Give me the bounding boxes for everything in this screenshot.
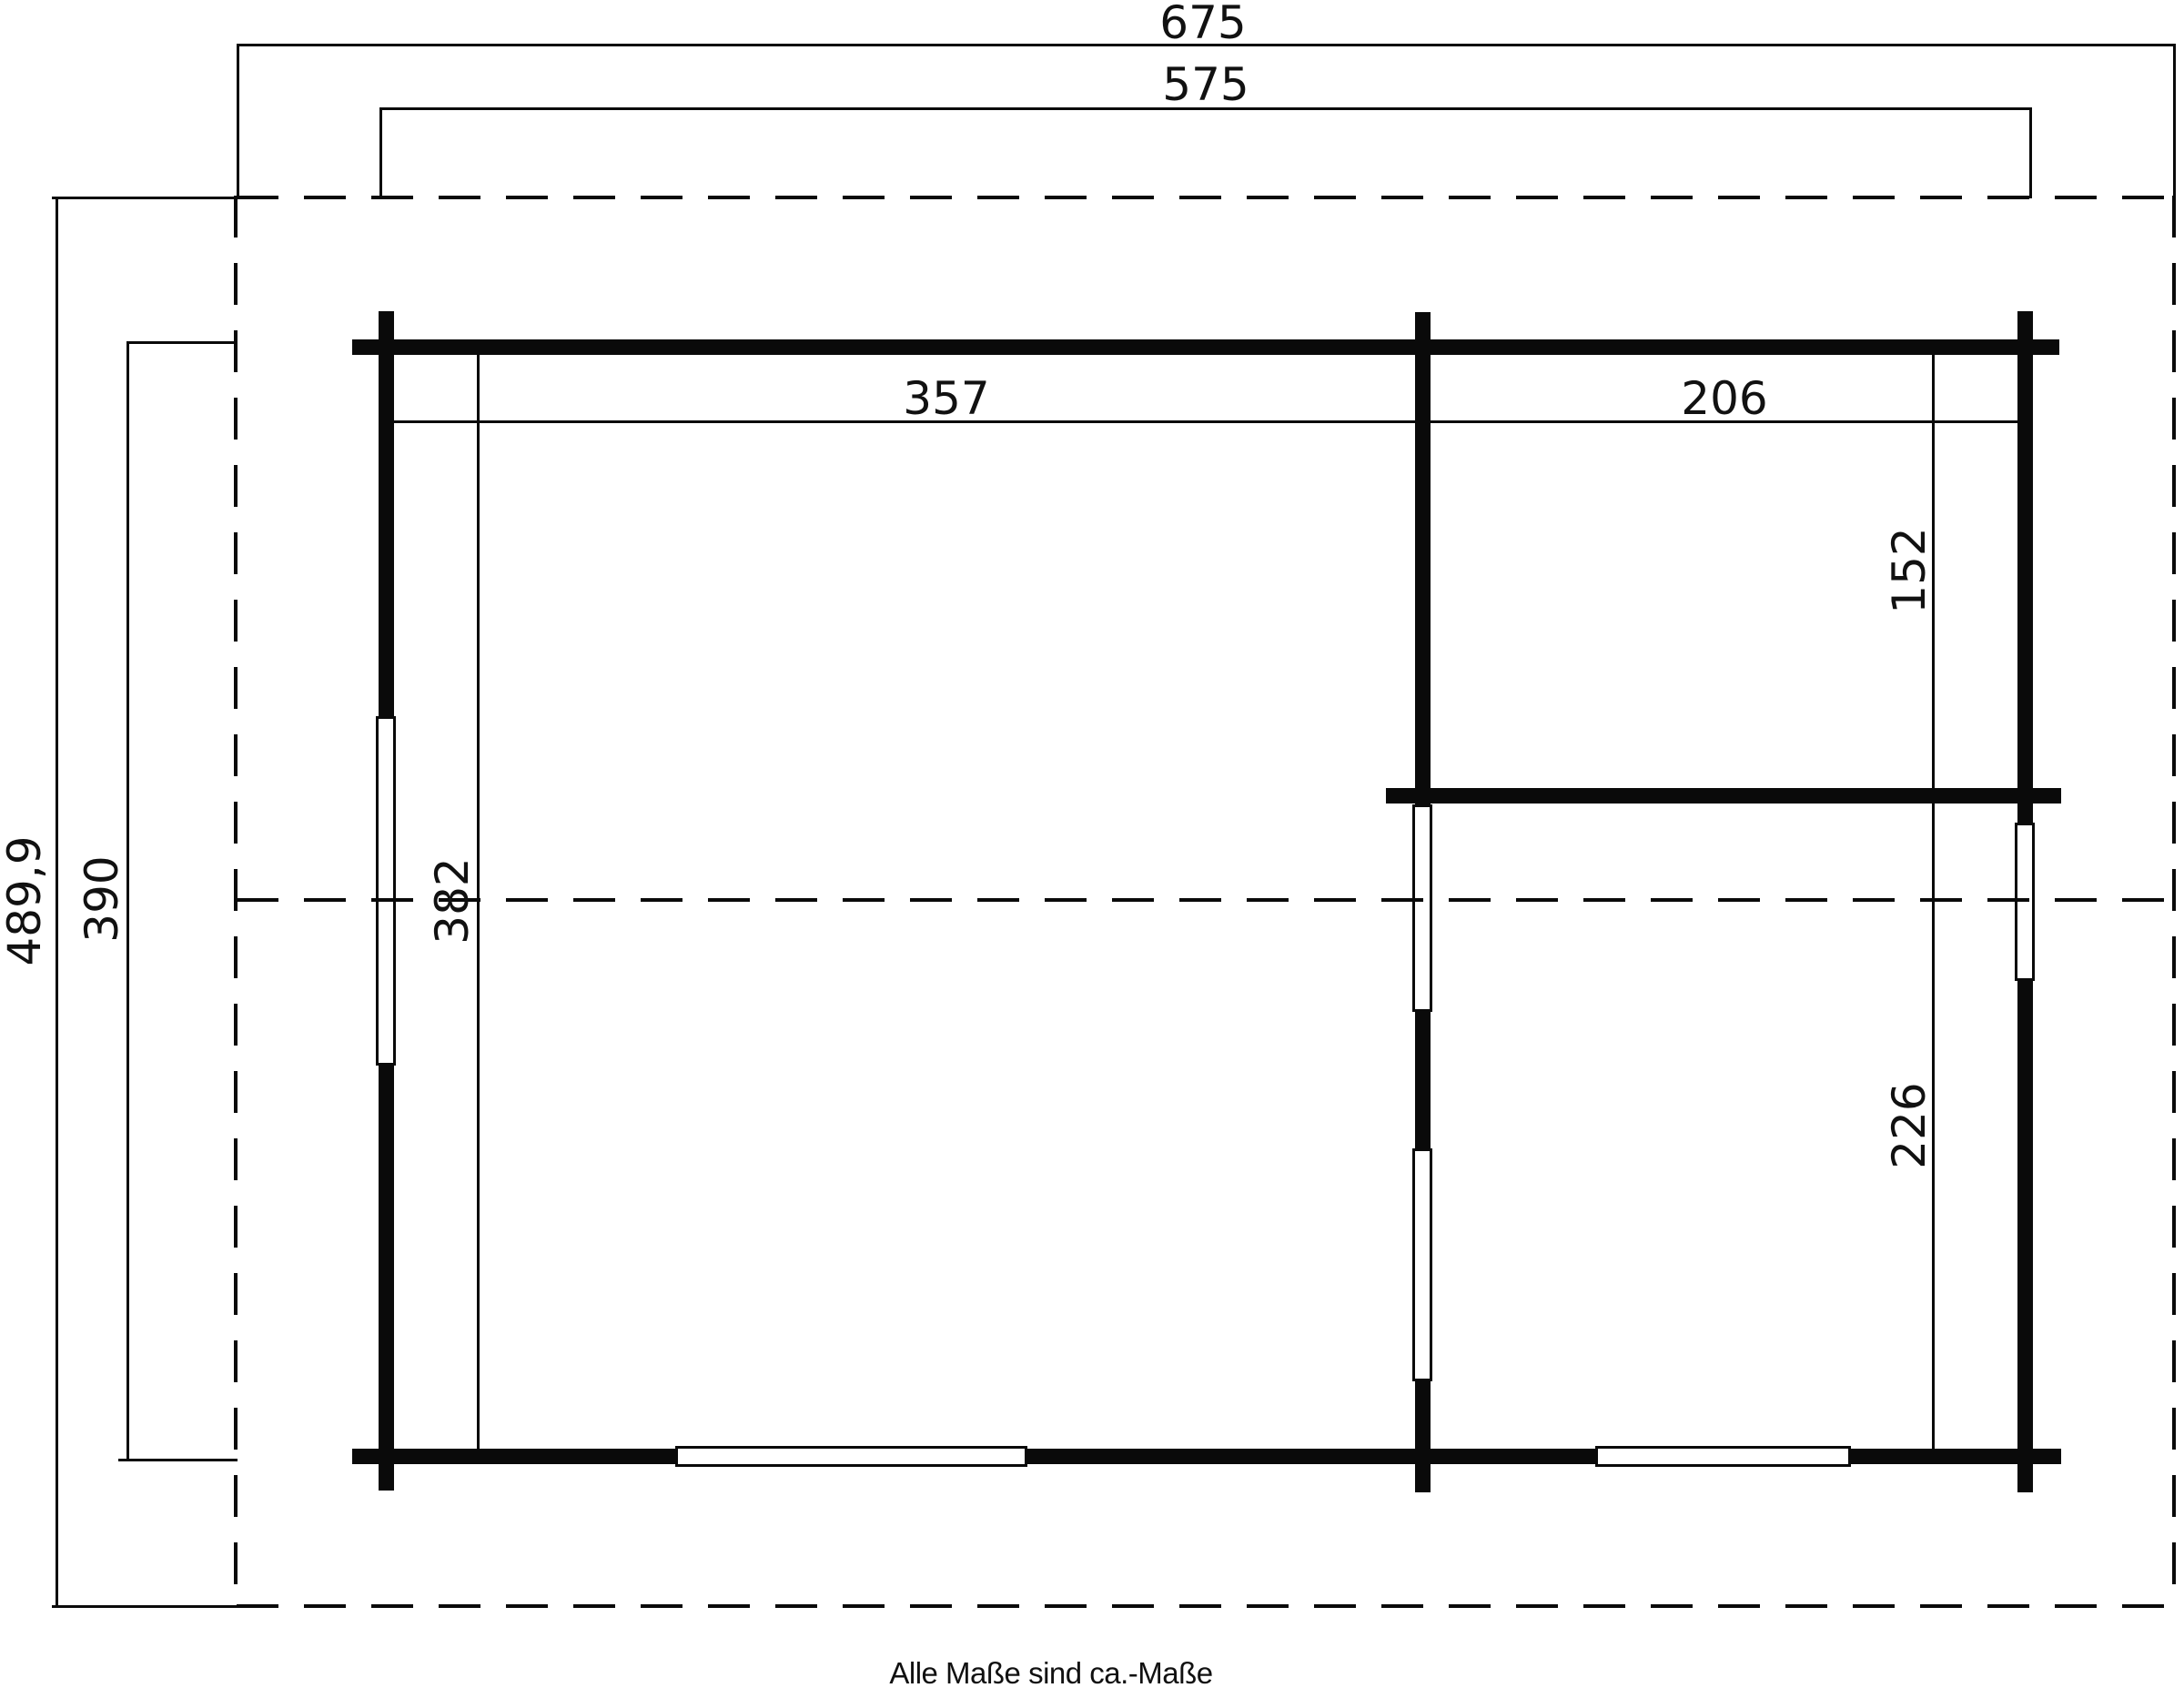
wall-middle-lower bbox=[1415, 1380, 1431, 1492]
roof-outline-right bbox=[2172, 196, 2176, 1608]
roof-outline-top bbox=[237, 196, 2177, 199]
wall-partition-right-room bbox=[1386, 788, 2061, 804]
dimension-line-675-right-tick bbox=[2173, 44, 2176, 198]
dimension-line-390-top-tick bbox=[126, 341, 238, 344]
wall-left-upper bbox=[379, 311, 394, 717]
door-opening-middle-lower bbox=[1412, 1148, 1432, 1381]
dim-overall-width-label: 675 bbox=[1159, 0, 1246, 49]
dim-right-bottom-room-depth-label: 226 bbox=[1883, 1082, 1936, 1168]
wall-middle-upper bbox=[1415, 312, 1431, 806]
dimension-line-575-right-tick bbox=[2029, 107, 2032, 198]
dim-left-room-width-label: 357 bbox=[903, 372, 989, 425]
window-bottom-left bbox=[675, 1446, 1027, 1467]
dimension-line-152-226 bbox=[1932, 355, 1935, 1449]
roof-outline-left bbox=[234, 196, 238, 1608]
caption-approx-dimensions: Alle Maße sind ca.-Maße bbox=[889, 1656, 1212, 1691]
floor-plan-canvas: 675 575 357 206 489,9 390 382 152 226 Al… bbox=[0, 0, 2184, 1698]
window-bottom-right bbox=[1595, 1446, 1851, 1467]
window-right-wall bbox=[2015, 823, 2035, 981]
dimension-line-390-bottom-tick bbox=[118, 1459, 238, 1461]
dimension-line-489-bottom-tick bbox=[52, 1605, 265, 1608]
wall-left-lower bbox=[379, 1064, 394, 1491]
dimension-line-489 bbox=[56, 197, 58, 1607]
dimension-line-575-left-tick bbox=[379, 107, 382, 198]
dimension-line-357-206 bbox=[394, 420, 2019, 423]
dimension-line-675-left-tick bbox=[237, 44, 239, 198]
dim-right-room-width-label: 206 bbox=[1681, 372, 1767, 425]
wall-top bbox=[352, 339, 2059, 355]
dim-right-top-room-depth-label: 152 bbox=[1883, 527, 1936, 613]
wall-right-upper bbox=[2017, 311, 2033, 824]
window-left-wall bbox=[376, 716, 396, 1066]
roof-ridge-line bbox=[237, 898, 2177, 902]
wall-right-lower bbox=[2017, 979, 2033, 1492]
dimension-line-489-top-tick bbox=[52, 197, 238, 199]
dim-overall-depth-label: 489,9 bbox=[0, 835, 51, 965]
door-opening-middle-upper bbox=[1412, 804, 1432, 1012]
dim-left-room-depth-label: 382 bbox=[426, 857, 479, 944]
roof-outline-bottom bbox=[237, 1604, 2177, 1608]
dim-building-width-label: 575 bbox=[1162, 58, 1249, 111]
dim-building-depth-label: 390 bbox=[76, 855, 128, 942]
wall-middle-mid bbox=[1415, 1009, 1431, 1150]
